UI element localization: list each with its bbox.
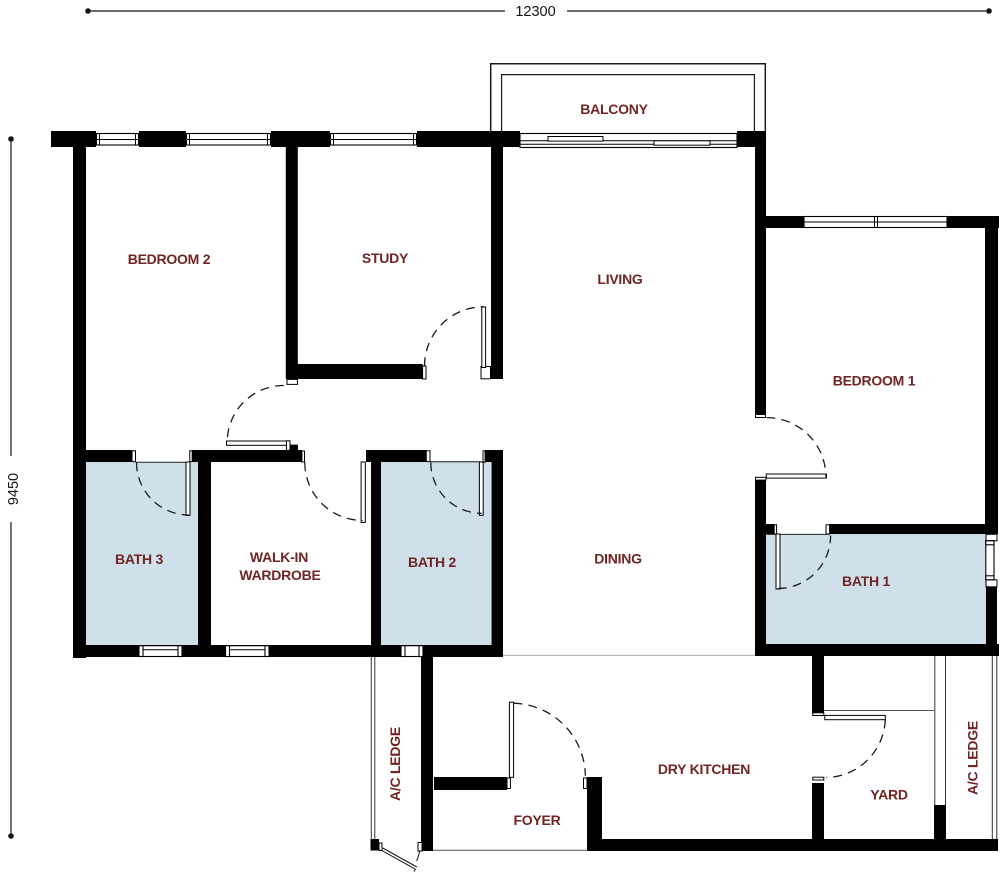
svg-text:BATH 1: BATH 1 (842, 573, 890, 589)
svg-text:A/C LEDGE: A/C LEDGE (965, 721, 981, 795)
svg-text:9450: 9450 (6, 473, 22, 505)
svg-text:BEDROOM 1: BEDROOM 1 (833, 373, 916, 389)
svg-text:FOYER: FOYER (514, 812, 561, 828)
svg-text:BALCONY: BALCONY (580, 101, 648, 117)
svg-text:BATH 2: BATH 2 (408, 554, 456, 570)
svg-text:12300: 12300 (515, 4, 555, 20)
svg-text:DINING: DINING (594, 551, 642, 567)
svg-text:YARD: YARD (870, 787, 908, 803)
svg-text:LIVING: LIVING (597, 271, 643, 287)
svg-text:BATH 3: BATH 3 (115, 551, 163, 567)
svg-text:BEDROOM 2: BEDROOM 2 (128, 251, 211, 267)
svg-text:STUDY: STUDY (362, 250, 409, 266)
svg-text:A/C LEDGE: A/C LEDGE (387, 727, 403, 801)
svg-text:WARDROBE: WARDROBE (239, 567, 320, 583)
svg-text:DRY KITCHEN: DRY KITCHEN (658, 761, 750, 777)
svg-text:WALK-IN: WALK-IN (250, 549, 308, 565)
